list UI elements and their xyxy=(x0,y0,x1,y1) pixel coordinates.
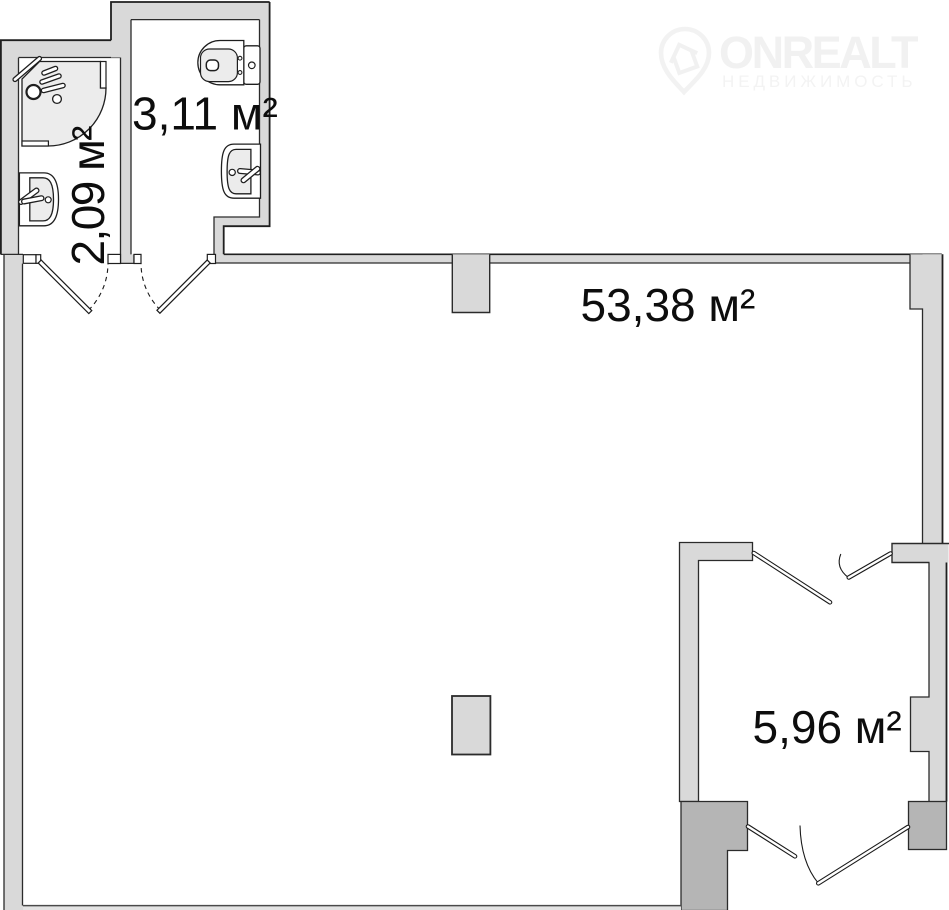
svg-text:53,38 м²: 53,38 м² xyxy=(581,279,756,331)
svg-text:2,09 м²: 2,09 м² xyxy=(62,126,114,266)
svg-text:НЕДВИЖИМОСТЬ: НЕДВИЖИМОСТЬ xyxy=(722,72,918,91)
svg-text:5,96 м²: 5,96 м² xyxy=(753,701,902,753)
svg-text:ONREALT: ONREALT xyxy=(719,27,919,78)
svg-text:3,11 м²: 3,11 м² xyxy=(132,88,278,140)
